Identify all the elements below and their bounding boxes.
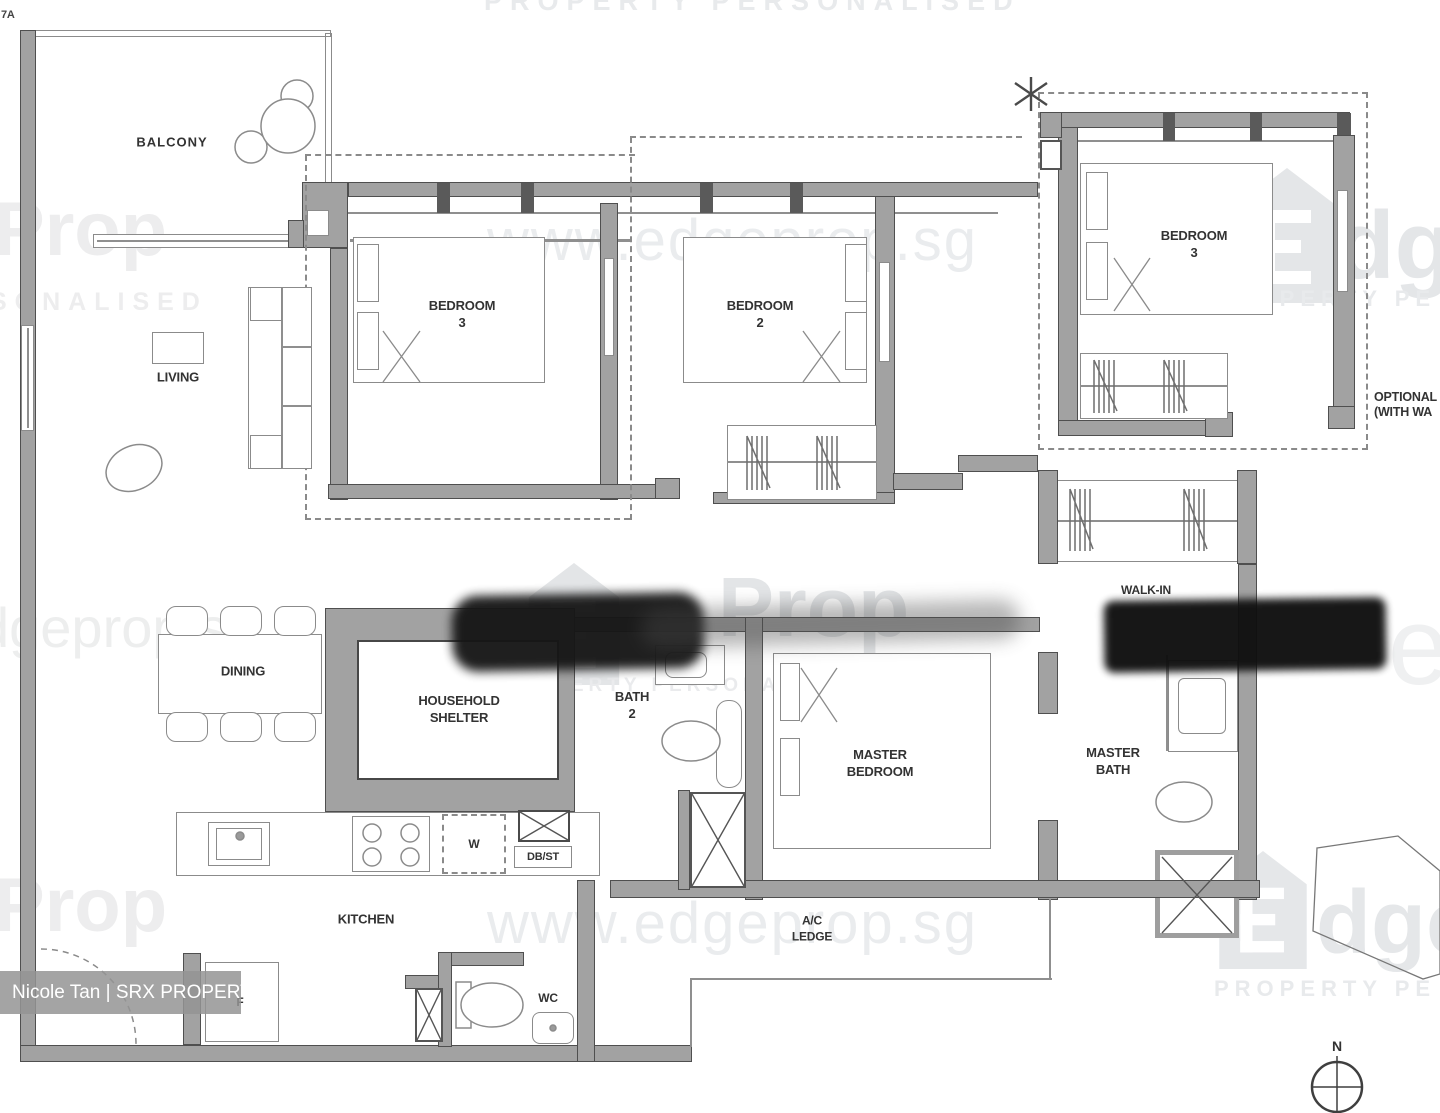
dashed-boundary	[305, 154, 635, 156]
ledge-line	[690, 978, 692, 1047]
wall	[1328, 406, 1355, 429]
ac-ledge-label: A/C LEDGE	[792, 913, 832, 944]
door-slot	[1337, 190, 1348, 292]
pillow	[780, 738, 800, 796]
window-mullion	[521, 183, 534, 213]
sofa-line	[282, 405, 312, 407]
window	[1040, 140, 1062, 170]
walk-in-label: WALK-IN	[1121, 583, 1171, 599]
wall	[1058, 420, 1210, 436]
wall	[1237, 470, 1257, 564]
optional-scheme-note: OPTIONAL (WITH WA	[1374, 390, 1437, 420]
sofa-line	[282, 346, 312, 348]
pillow	[357, 312, 379, 370]
chair	[166, 712, 208, 742]
shaft-box	[415, 988, 443, 1042]
window-mullion	[437, 183, 450, 213]
bath2-label: BATH 2	[615, 689, 649, 723]
watermark-tagline-top: PROPERTY PERSONALISED	[484, 0, 1021, 15]
pillow	[780, 663, 800, 721]
window-mullion	[700, 183, 713, 213]
ledge-line	[1049, 899, 1051, 980]
wall	[745, 617, 763, 900]
watermark-tagline-bottom-right: PROPERTY PE	[1214, 978, 1436, 1000]
redaction-smudge	[640, 599, 1021, 649]
door-slot	[879, 262, 890, 362]
side-table	[250, 435, 282, 469]
bedroom2-label: BEDROOM 2	[727, 298, 794, 332]
wall	[678, 790, 690, 890]
wall	[893, 473, 963, 490]
pillow	[1086, 242, 1108, 300]
wardrobe-rail	[1056, 520, 1240, 522]
wc-label: WC	[538, 991, 558, 1007]
wall	[655, 478, 680, 499]
tv-console	[152, 332, 204, 364]
household-shelter-label: HOUSEHOLD SHELTER	[418, 693, 499, 727]
kitchen-label: KITCHEN	[338, 912, 394, 929]
wall	[20, 30, 36, 1062]
shower	[716, 700, 742, 788]
agent-credit-text: Nicole Tan | SRX PROPERTY	[0, 982, 264, 1004]
living-label: LIVING	[157, 370, 199, 387]
dashed-boundary	[305, 518, 630, 520]
agent-credit-banner: Nicole Tan | SRX PROPERTY	[0, 971, 241, 1014]
window-mullion	[1250, 113, 1262, 141]
window	[307, 210, 329, 236]
chair	[220, 712, 262, 742]
compass	[1312, 1056, 1362, 1113]
chair	[274, 606, 316, 636]
wall	[577, 880, 595, 1062]
chair	[220, 606, 262, 636]
balcony-table	[235, 80, 315, 163]
wall	[1038, 652, 1058, 714]
wall	[330, 248, 348, 500]
window-line	[1078, 140, 1335, 142]
watermark-e-right: e	[1388, 592, 1440, 702]
pillow	[357, 244, 379, 302]
pillow	[1086, 172, 1108, 230]
wardrobe-rail	[1080, 385, 1228, 387]
watermark-dge-bottom-right: dge	[1316, 878, 1440, 968]
bedroom3-label: BEDROOM 3	[429, 298, 496, 332]
wall	[1058, 112, 1350, 128]
coffee-table	[98, 436, 169, 500]
sink-basin	[532, 1012, 574, 1044]
wall	[1040, 112, 1062, 138]
stove	[352, 816, 430, 872]
wall	[348, 182, 1038, 197]
balcony-label: BALCONY	[136, 135, 207, 152]
ledge-line	[690, 978, 1052, 980]
washer-label: W	[468, 837, 479, 853]
watermark-url-bottom: www.edgeprop.sg	[487, 895, 978, 953]
floorplan-page: PROPERTY PERSONALISED www.edgeprop.sg Pr…	[0, 0, 1440, 1113]
side-table	[250, 287, 282, 321]
wall	[958, 455, 1038, 472]
shaft-box	[690, 792, 746, 888]
chair	[166, 606, 208, 636]
master-bedroom-label: MASTER BEDROOM	[847, 747, 914, 781]
chair	[274, 712, 316, 742]
window-mullion	[790, 183, 803, 213]
wall	[288, 220, 304, 248]
unit-corner-label: 7A	[1, 8, 15, 22]
wall	[1038, 470, 1058, 564]
window-line	[97, 240, 297, 242]
master-bath-label: MASTER BATH	[1086, 745, 1140, 779]
redaction-blob-right	[1104, 597, 1387, 673]
dashed-boundary	[630, 136, 1022, 138]
dashed-boundary	[630, 137, 632, 520]
window-line	[27, 328, 29, 428]
window-mullion	[1163, 113, 1175, 141]
wall	[328, 484, 680, 499]
db-box	[518, 810, 570, 842]
balcony-rail-top	[25, 30, 331, 37]
compass-north-label: N	[1332, 1037, 1342, 1055]
dining-label: DINING	[221, 664, 265, 681]
bedroom3-optional-label: BEDROOM 3	[1161, 228, 1228, 262]
pillow	[845, 244, 867, 302]
dbst-label: DB/ST	[527, 850, 559, 864]
sink-basin	[1178, 678, 1226, 734]
kitchen-sink-basin	[216, 828, 262, 860]
pillow	[845, 312, 867, 370]
door-slot	[604, 258, 614, 356]
wardrobe-rail	[727, 461, 877, 463]
